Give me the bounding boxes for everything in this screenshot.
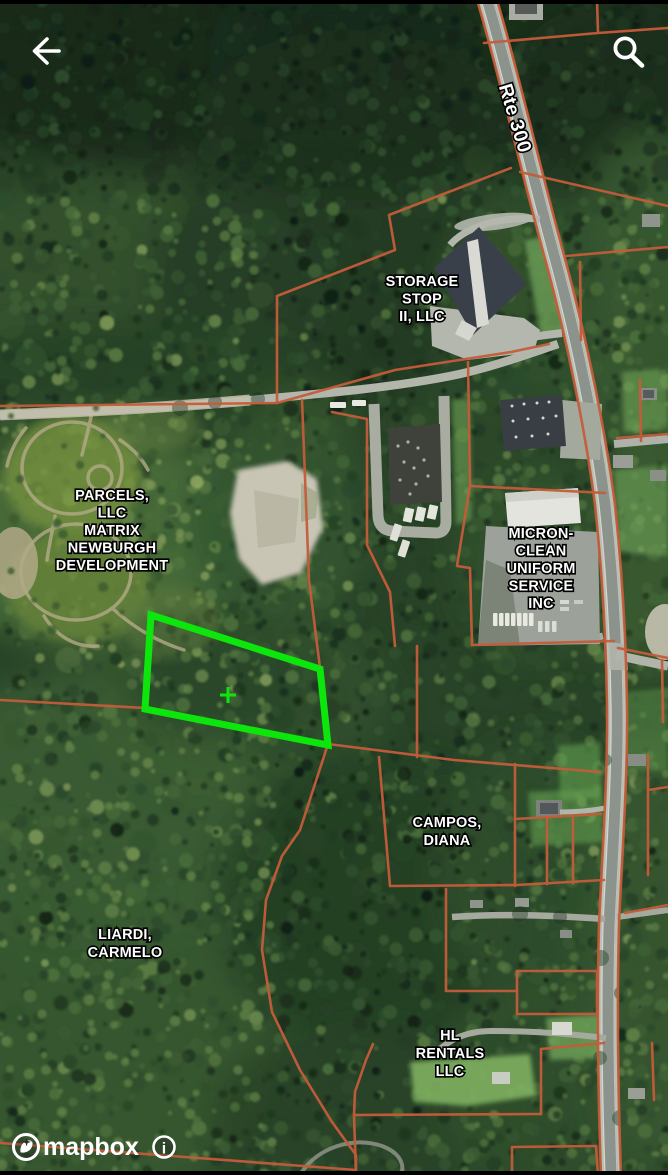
svg-text:i: i (162, 1141, 166, 1158)
svg-text:SERVICE: SERVICE (509, 579, 574, 595)
svg-text:RENTALS: RENTALS (416, 1046, 485, 1062)
svg-text:CLEAN: CLEAN (516, 544, 567, 560)
svg-text:NEWBURGH: NEWBURGH (68, 541, 157, 557)
svg-text:LLC: LLC (436, 1064, 465, 1080)
svg-text:LIARDI,: LIARDI, (98, 927, 152, 943)
svg-text:PARCELS,: PARCELS, (75, 488, 149, 504)
svg-text:mapbox: mapbox (43, 1133, 139, 1161)
svg-text:UNIFORM: UNIFORM (506, 561, 575, 577)
svg-text:HL: HL (440, 1028, 460, 1044)
svg-text:LLC: LLC (98, 506, 127, 522)
svg-text:DEVELOPMENT: DEVELOPMENT (56, 558, 169, 574)
svg-text:CARMELO: CARMELO (88, 945, 163, 961)
svg-text:II, LLC: II, LLC (399, 309, 445, 325)
svg-text:INC: INC (528, 596, 554, 612)
svg-text:STORAGE: STORAGE (386, 274, 459, 290)
svg-text:MICRON-: MICRON- (508, 526, 573, 542)
svg-text:MATRIX: MATRIX (84, 523, 140, 539)
svg-text:STOP: STOP (402, 292, 442, 308)
svg-text:DIANA: DIANA (424, 833, 471, 849)
svg-text:CAMPOS,: CAMPOS, (412, 815, 481, 831)
